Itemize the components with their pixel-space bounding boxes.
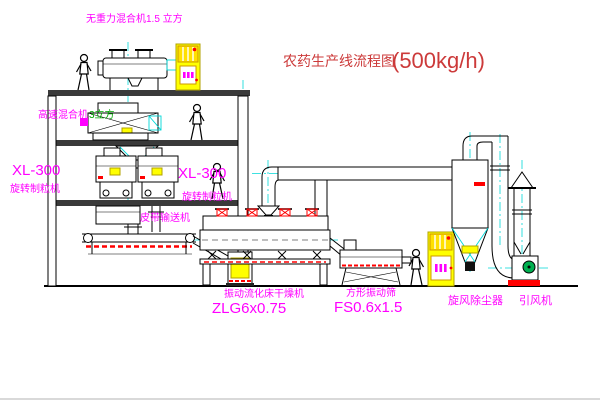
label-belt-conveyor: 皮带输送机: [140, 211, 190, 224]
fan-base: [508, 280, 540, 286]
label-fluidbed-name: 振动流化床干燥机: [224, 287, 304, 300]
draft-fan: [508, 256, 540, 286]
cabinet2-indicator-light: [447, 236, 451, 240]
fluid-bed-dryer: [200, 209, 348, 285]
cabinet-indicator-light: [193, 48, 197, 52]
label-granulator-left-model: XL-300: [12, 162, 60, 179]
cyclone-separator: [452, 146, 488, 271]
worker-figure-1: [77, 55, 92, 91]
vibrating-sieve: [340, 240, 411, 285]
label-sieve-model: FS0.6x1.5: [334, 299, 402, 316]
control-cabinet-2: [428, 232, 454, 286]
label-granulator-left-name: 旋转制粒机: [10, 182, 60, 195]
control-cabinet-1: [176, 44, 200, 90]
label-granulator-right-model: XL-300: [178, 165, 226, 182]
roof-slab: [48, 90, 250, 96]
diagram-title-capacity: (500kg/h): [392, 48, 485, 73]
granulator-left: [96, 148, 136, 198]
worker-figure-4: [409, 250, 424, 286]
label-high-speed-mixer: 高速混合机: [38, 108, 88, 121]
label-fluidbed-model: ZLG6x0.75: [212, 300, 286, 317]
no-gravity-mixer: [98, 50, 183, 90]
granulator-right: [138, 148, 178, 198]
cyclone-flange-mark: [474, 182, 485, 186]
high-speed-mixer: [80, 103, 161, 140]
label-granulator-right-name: 旋转制粒机: [182, 190, 232, 203]
exhaust-stack: [508, 172, 536, 256]
cad-flow-diagram: 无重力混合机1.5 立方 农药生产线流程图 (500kg/h) 高速混合机 3立…: [0, 0, 600, 403]
label-cyclone-name: 旋风除尘器: [448, 293, 503, 307]
vibration-springs: [208, 251, 321, 259]
label-fan-name: 引风机: [519, 293, 552, 307]
label-high-speed-mixer-size: 3立方: [89, 108, 115, 121]
label-sieve-name: 方形振动筛: [346, 286, 396, 299]
floor2-slab: [56, 140, 247, 146]
worker-figure-2: [190, 105, 205, 141]
label-gravity-mixer: 无重力混合机1.5 立方: [86, 12, 183, 25]
diagram-drawing: 无重力混合机1.5 立方 农药生产线流程图 (500kg/h) 高速混合机 3立…: [0, 0, 600, 403]
diagram-title: 农药生产线流程图: [283, 53, 395, 69]
